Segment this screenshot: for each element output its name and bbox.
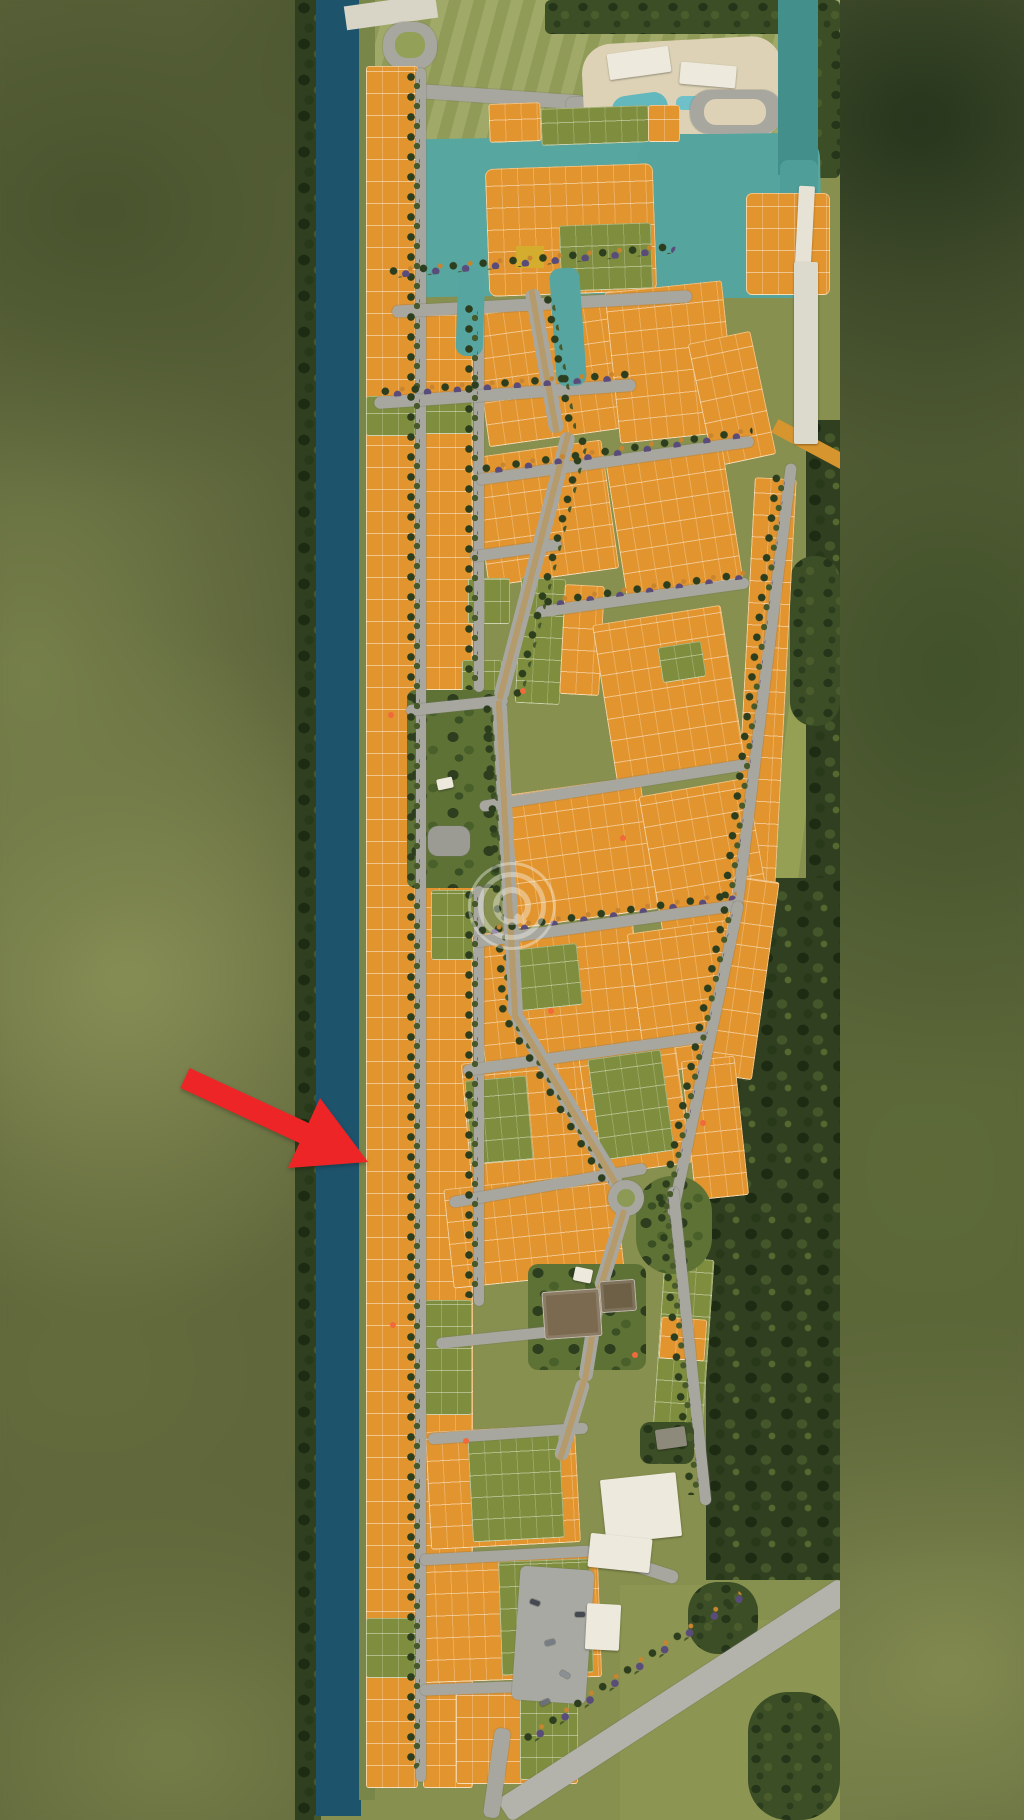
- screenshot-canvas: [0, 0, 1024, 1820]
- red-arrow-shaft: [185, 1078, 306, 1134]
- red-arrow-annotation: [0, 0, 1024, 1820]
